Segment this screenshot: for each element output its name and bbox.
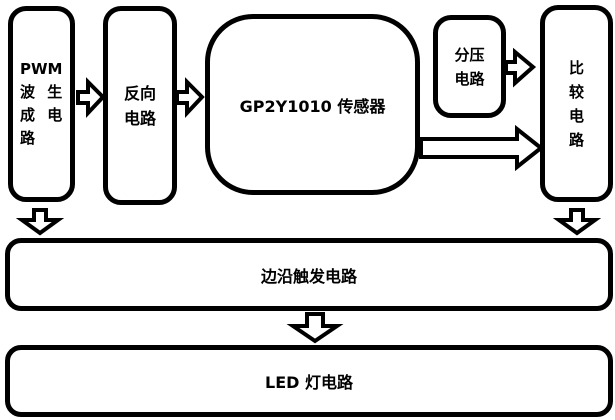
box-sensor-label: GP2Y1010 传感器 <box>240 93 386 117</box>
arrow-divider-to-comparator <box>506 52 533 83</box>
arrow-edge-trigger-to-led <box>293 314 337 341</box>
label-line: 分压 <box>454 43 484 67</box>
box-pwm-generator-label: PWM 波 生 成 电 路 <box>13 58 62 150</box>
label-line: 路 <box>569 128 584 152</box>
label-line: 波 生 <box>20 81 62 104</box>
box-inverter-label: 反向 电路 <box>124 81 156 131</box>
arrow-comparator-to-edge-trigger <box>559 210 595 233</box>
box-pwm-generator: PWM 波 生 成 电 路 <box>8 6 75 202</box>
box-led-label: LED 灯电路 <box>265 369 353 393</box>
arrow-pwm-to-inverter <box>78 82 103 113</box>
box-inverter: 反向 电路 <box>103 6 177 205</box>
label-line: 比 <box>569 56 584 80</box>
label-line: LED 灯电路 <box>265 369 353 393</box>
label-line: 电路 <box>454 67 484 91</box>
label-line: 较 <box>569 80 584 104</box>
label-line: GP2Y1010 传感器 <box>240 93 386 117</box>
label-line: 电 <box>569 104 584 128</box>
label-line: 反向 <box>124 81 156 106</box>
box-comparator: 比 较 电 路 <box>540 5 613 202</box>
arrow-sensor-to-comparator <box>421 129 541 167</box>
box-led: LED 灯电路 <box>5 345 613 417</box>
label-line: 路 <box>20 127 62 150</box>
label-line: 电路 <box>124 106 156 131</box>
box-sensor: GP2Y1010 传感器 <box>205 14 420 195</box>
box-voltage-divider-label: 分压 电路 <box>454 43 484 91</box>
box-edge-trigger-label: 边沿触发电路 <box>261 263 357 287</box>
label-line: 成 电 <box>20 104 62 127</box>
box-edge-trigger: 边沿触发电路 <box>5 238 613 311</box>
circuit-block-diagram: PWM 波 生 成 电 路 反向 电路 GP2Y1010 传感器 分压 电路 比… <box>0 0 615 420</box>
arrow-pwm-to-edge-trigger <box>22 210 58 233</box>
box-comparator-label: 比 较 电 路 <box>569 56 584 152</box>
label-line: 边沿触发电路 <box>261 263 357 287</box>
arrow-inverter-to-sensor <box>177 82 202 113</box>
box-voltage-divider: 分压 电路 <box>433 15 506 118</box>
label-line: PWM <box>20 58 62 81</box>
